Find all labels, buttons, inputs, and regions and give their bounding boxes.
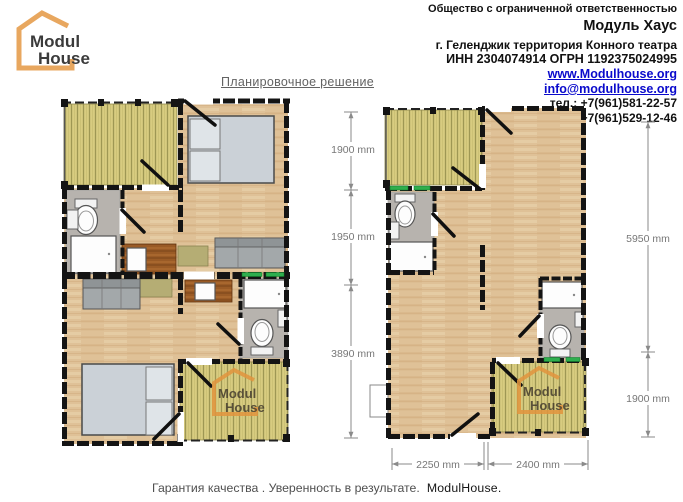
dimension-label: 1950 mm bbox=[331, 231, 375, 243]
shower-icon bbox=[389, 242, 433, 271]
company-address: г. Геленджик территория Конного театра bbox=[428, 38, 677, 52]
bathroom-upper-left bbox=[66, 190, 120, 274]
floor-plan-left: Modul House bbox=[58, 96, 294, 448]
footer-text: Гарантия качества . Уверенность в резуль… bbox=[152, 481, 420, 495]
kitchen-lower bbox=[185, 280, 232, 302]
company-legal-form: Общество с ограниченной ответственностью bbox=[428, 3, 677, 16]
page-title: Планировочное решение bbox=[200, 75, 395, 89]
company-name: Модуль Хаус bbox=[428, 18, 677, 35]
bathroom-upper-left bbox=[388, 192, 434, 271]
shower-icon bbox=[542, 282, 582, 308]
modulhouse-logo: Modul House bbox=[8, 4, 138, 76]
bench-lower bbox=[140, 279, 172, 297]
watermark-text: House bbox=[225, 400, 265, 415]
bench-upper bbox=[178, 246, 208, 266]
company-inn-ogrn: ИНН 2304074914 ОГРН 1192375024995 bbox=[428, 52, 677, 67]
footer-tagline: Гарантия качества . Уверенность в резуль… bbox=[152, 481, 501, 495]
watermark-text: Modul bbox=[523, 384, 561, 399]
watermark-text: House bbox=[530, 398, 570, 413]
footer-brand: ModulHouse. bbox=[427, 481, 502, 495]
toilet-icon bbox=[251, 320, 273, 347]
exterior-unit bbox=[370, 385, 388, 417]
dimension-label: 5950 mm bbox=[626, 233, 670, 245]
toilet-tank-icon bbox=[550, 349, 570, 357]
bed-bottom-left bbox=[82, 364, 174, 435]
floor-plan-right: Modul House 1900 mm 1950 mm 3890 mm 5950… bbox=[330, 96, 683, 480]
bathroom-middle-right bbox=[540, 282, 584, 358]
toilet-icon bbox=[549, 325, 571, 349]
dimension-label: 2250 mm bbox=[416, 459, 460, 471]
sink-icon bbox=[67, 210, 78, 229]
sofa-upper-right bbox=[215, 238, 285, 268]
website-link[interactable]: www.Modulhouse.org bbox=[428, 67, 677, 82]
email-link[interactable]: info@modulhouse.org bbox=[428, 82, 677, 97]
bathroom-lower-right bbox=[240, 278, 288, 358]
terrace-top-left bbox=[61, 99, 178, 189]
bed-top-right bbox=[188, 116, 274, 183]
dimension-label: 1900 mm bbox=[331, 144, 375, 156]
sofa-lower-left bbox=[83, 279, 140, 309]
dimension-label: 3890 mm bbox=[331, 348, 375, 360]
logo-text-house: House bbox=[38, 49, 90, 68]
terrace-top-left bbox=[383, 107, 485, 188]
dimension-label: 1900 mm bbox=[626, 393, 670, 405]
toilet-tank-icon bbox=[251, 347, 273, 355]
watermark-text: Modul bbox=[218, 386, 256, 401]
dimension-label: 2400 mm bbox=[516, 459, 560, 471]
kitchen-upper bbox=[122, 244, 176, 274]
